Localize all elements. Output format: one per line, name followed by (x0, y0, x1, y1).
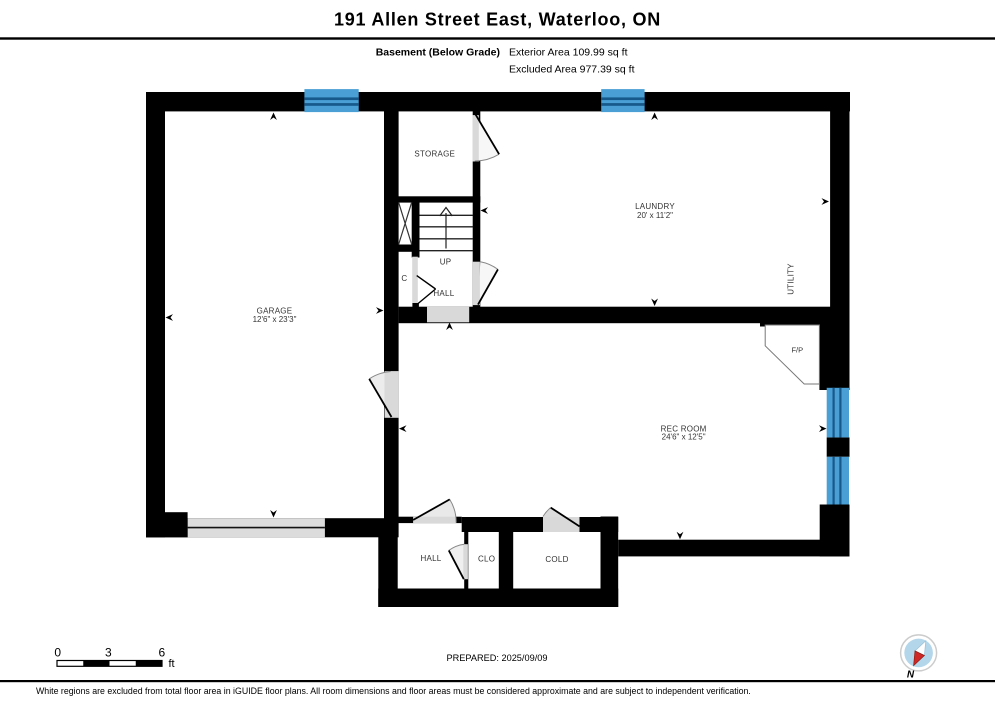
svg-text:White regions are excluded fro: White regions are excluded from total fl… (36, 686, 751, 696)
svg-text:HALL: HALL (420, 554, 441, 563)
svg-text:Exterior Area 109.99 sq ft: Exterior Area 109.99 sq ft (509, 47, 628, 59)
svg-text:191 Allen Street East, Waterlo: 191 Allen Street East, Waterloo, ON (334, 10, 661, 30)
svg-text:3: 3 (105, 646, 112, 660)
svg-text:UP: UP (440, 258, 452, 267)
svg-text:Excluded Area 977.39 sq ft: Excluded Area 977.39 sq ft (509, 64, 635, 76)
svg-text:ft: ft (169, 658, 175, 670)
svg-text:CLO: CLO (478, 555, 495, 564)
svg-text:12'6" x 23'3": 12'6" x 23'3" (253, 315, 297, 324)
svg-text:STORAGE: STORAGE (414, 149, 455, 158)
svg-text:UTILITY: UTILITY (787, 263, 796, 295)
svg-text:LAUNDRY: LAUNDRY (635, 202, 675, 211)
svg-text:COLD: COLD (545, 555, 568, 564)
svg-text:F/P: F/P (791, 345, 803, 354)
svg-text:6: 6 (158, 646, 165, 660)
svg-text:24'6" x 12'5": 24'6" x 12'5" (662, 433, 706, 442)
svg-text:HALL: HALL (433, 289, 454, 298)
svg-text:20' x 11'2": 20' x 11'2" (637, 211, 673, 220)
svg-text:PREPARED: 2025/09/09: PREPARED: 2025/09/09 (447, 653, 548, 663)
svg-text:Basement (Below Grade): Basement (Below Grade) (376, 47, 500, 59)
svg-text:N: N (907, 670, 915, 681)
svg-text:C: C (401, 274, 407, 283)
svg-text:0: 0 (54, 646, 61, 660)
